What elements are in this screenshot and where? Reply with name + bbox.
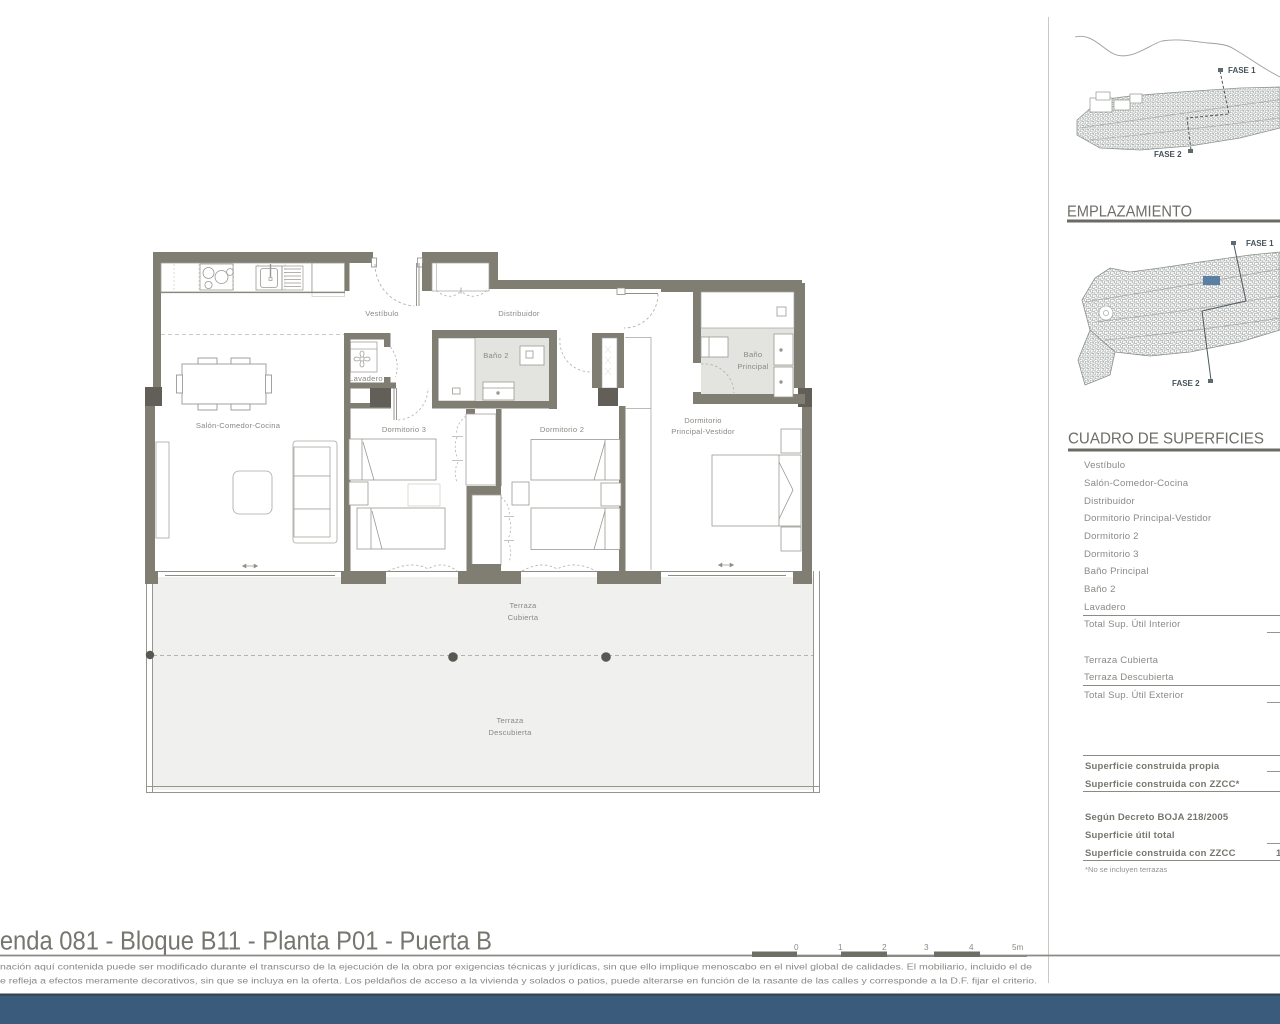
svg-text:FASE 1: FASE 1	[1228, 66, 1256, 75]
svg-text:Vestíbulo: Vestíbulo	[1084, 460, 1125, 471]
svg-text:Terraza Descubierta: Terraza Descubierta	[1084, 672, 1174, 683]
svg-text:EMPLAZAMIENTO: EMPLAZAMIENTO	[1067, 204, 1192, 221]
svg-text:FASE 2: FASE 2	[1172, 379, 1200, 388]
svg-text:Superficie construida con ZZCC: Superficie construida con ZZCC*	[1085, 779, 1240, 790]
svg-text:CUADRO DE SUPERFICIES: CUADRO DE SUPERFICIES	[1068, 431, 1264, 448]
svg-text:4: 4	[969, 943, 974, 952]
svg-text:Cubierta: Cubierta	[508, 613, 539, 622]
svg-text:Terraza: Terraza	[496, 716, 524, 725]
svg-text:Total Sup. Útil Exterior: Total Sup. Útil Exterior	[1084, 690, 1184, 701]
svg-text:Dormitorio 2: Dormitorio 2	[540, 425, 584, 434]
svg-text:Salón-Comedor-Cocina: Salón-Comedor-Cocina	[1084, 478, 1189, 489]
svg-text:2: 2	[882, 943, 887, 952]
svg-text:Baño 2: Baño 2	[1084, 584, 1116, 595]
svg-text:Distribuidor: Distribuidor	[498, 309, 540, 318]
svg-text:1: 1	[1276, 848, 1280, 859]
svg-text:Dormitorio: Dormitorio	[684, 416, 722, 425]
svg-text:Según Decreto BOJA 218/2005: Según Decreto BOJA 218/2005	[1085, 812, 1229, 823]
svg-text:Baño: Baño	[744, 350, 763, 359]
svg-text:*No se incluyen terrazas: *No se incluyen terrazas	[1085, 865, 1168, 874]
svg-text:Descubierta: Descubierta	[488, 728, 532, 737]
svg-text:Salón-Comedor-Cocina: Salón-Comedor-Cocina	[196, 421, 281, 430]
svg-text:Lavadero: Lavadero	[349, 374, 383, 383]
svg-text:nación aquí contenida puede s: nación aquí contenida puede ser modifica…	[0, 963, 1033, 972]
svg-text:Superficie útil total: Superficie útil total	[1085, 830, 1175, 841]
svg-text:Vivienda 081 - Bloque B11 - Pl: Vivienda 081 - Bloque B11 - Planta P01 -…	[0, 928, 492, 956]
svg-text:3: 3	[924, 943, 929, 952]
svg-text:Dormitorio 3: Dormitorio 3	[382, 425, 426, 434]
svg-text:Baño Principal: Baño Principal	[1084, 566, 1149, 577]
svg-text:Lavadero: Lavadero	[1084, 602, 1126, 613]
svg-text:e refleja a efectos meramente: e refleja a efectos meramente decorativo…	[0, 977, 1037, 986]
svg-text:Superficie construida propia: Superficie construida propia	[1085, 761, 1220, 772]
svg-text:Terraza: Terraza	[509, 601, 537, 610]
svg-text:Total Sup. Útil Interior: Total Sup. Útil Interior	[1084, 619, 1181, 630]
svg-text:Principal: Principal	[737, 362, 768, 371]
svg-text:Dormitorio Principal-Vestidor: Dormitorio Principal-Vestidor	[1084, 513, 1212, 524]
svg-text:FASE 2: FASE 2	[1154, 150, 1182, 159]
svg-text:Distribuidor: Distribuidor	[1084, 496, 1136, 507]
svg-text:FASE 1: FASE 1	[1246, 239, 1274, 248]
svg-text:Vestíbulo: Vestíbulo	[365, 309, 399, 318]
svg-text:Dormitorio 3: Dormitorio 3	[1084, 549, 1139, 560]
svg-text:Dormitorio 2: Dormitorio 2	[1084, 531, 1139, 542]
svg-text:Superficie construida con ZZCC: Superficie construida con ZZCC	[1085, 848, 1236, 859]
svg-text:1: 1	[838, 943, 843, 952]
svg-text:Baño 2: Baño 2	[483, 351, 509, 360]
svg-text:Principal-Vestidor: Principal-Vestidor	[671, 427, 735, 436]
svg-text:0: 0	[794, 943, 799, 952]
svg-text:5m: 5m	[1012, 943, 1024, 952]
svg-text:Terraza Cubierta: Terraza Cubierta	[1084, 655, 1159, 666]
